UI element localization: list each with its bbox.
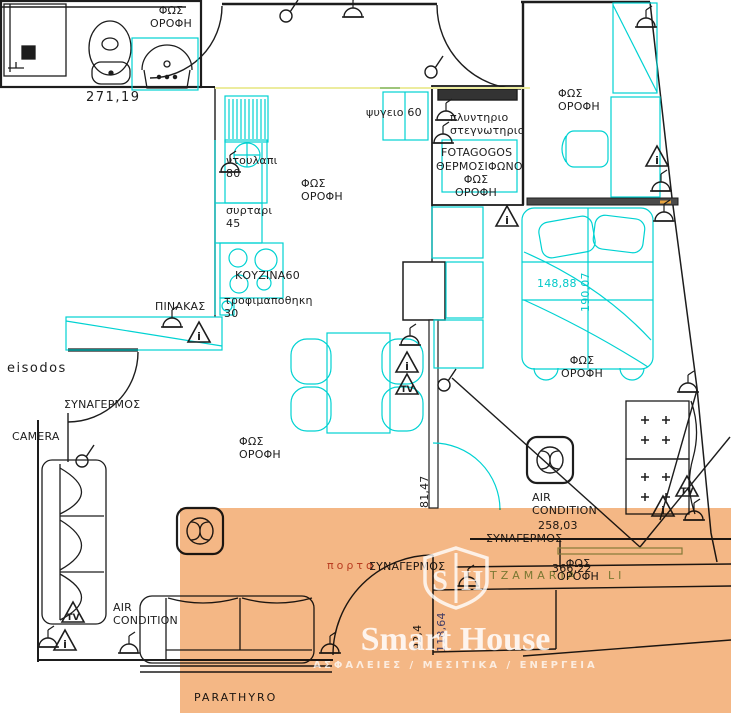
sofa-left <box>42 460 106 624</box>
dining-table <box>327 333 390 433</box>
pillow <box>592 214 646 254</box>
label-air-condition-left: AIR CONDITION <box>113 602 178 628</box>
label-eisodos: eisodos <box>7 361 67 376</box>
label-plyntirio: πλυντηριο στεγνωτηριο <box>450 112 525 138</box>
label-camera: CAMERA <box>12 431 60 444</box>
dimension-bath-width: 271,19 <box>86 90 141 105</box>
label-fos-orofi-top-right: ΦΩΣ ΟΡΟΦΗ <box>558 88 600 114</box>
dimension-hall-wall: 81,47 <box>419 476 432 509</box>
door-arc <box>433 443 500 510</box>
label-fotagogos: FOTAGOGOS <box>441 147 512 160</box>
lamp-icon <box>342 0 364 17</box>
watermark-overlay <box>180 508 731 713</box>
lamp-icon <box>635 6 657 27</box>
label-syrtari: συρταρι 45 <box>226 205 272 231</box>
label-psygeio: ψυγειο 60 <box>366 107 422 120</box>
label-kouzina: ΚΟΥΖΙΝΑ60 <box>235 270 300 283</box>
lamp-icon <box>399 324 421 345</box>
curtain-wave <box>689 401 696 514</box>
label-fos-orofi-kitchen: ΦΩΣ ΟΡΟΦΗ <box>301 178 343 204</box>
camera-icon <box>425 56 443 78</box>
armchair <box>566 131 608 167</box>
toilet <box>89 21 131 75</box>
wardrobe-right <box>626 401 697 514</box>
hall-closet <box>432 207 483 258</box>
tv-label: TV <box>680 487 693 497</box>
ceiling-fan-icon <box>527 437 573 483</box>
tv-label: TV <box>400 385 413 395</box>
dimension-bed-width: 148,88 <box>537 278 577 291</box>
label-pinakas: ΠΙΝΑΚΑΣ <box>155 301 205 314</box>
warning-glyph: i <box>63 638 67 651</box>
label-trofimapothiki: τροφιμαποθηκη 30 <box>224 295 313 321</box>
chair <box>291 387 331 431</box>
warning-glyph: i <box>655 154 659 167</box>
tv-label: TV <box>66 613 79 623</box>
label-synagermos-entrance: ΣΥΝΑΓΕΡΜΟΣ <box>64 399 140 412</box>
dimension-bed-length: 190,07 <box>580 272 593 312</box>
label-fos-orofi-laundry: ΦΩΣ ΟΡΟΦΗ <box>448 174 504 200</box>
sink <box>142 45 192 70</box>
shower-stall <box>4 4 66 76</box>
camera-icon <box>76 445 94 467</box>
label-fos-orofi-bedroom: ΦΩΣ ΟΡΟΦΗ <box>552 355 612 381</box>
warning-glyph: i <box>505 214 509 227</box>
warning-glyph: i <box>197 330 201 343</box>
warning-glyph: i <box>405 360 409 373</box>
hall-closet <box>446 262 483 318</box>
lamp-icon <box>118 632 140 653</box>
label-fos-orofi-living: ΦΩΣ ΟΡΟΦΗ <box>239 436 281 462</box>
security-cameras <box>76 0 456 467</box>
label-fos-orofi-bath: ΦΩΣ ΟΡΟΦΗ <box>142 5 200 31</box>
cyan-furniture <box>66 3 660 510</box>
label-ntoulapi: ντουλαπι 80 <box>226 155 278 181</box>
hall-closet <box>434 320 483 368</box>
lamp-icon <box>37 626 59 647</box>
floorplan-page: i i i i i i TV TV TV Φ <box>0 0 731 713</box>
chair <box>291 339 331 384</box>
